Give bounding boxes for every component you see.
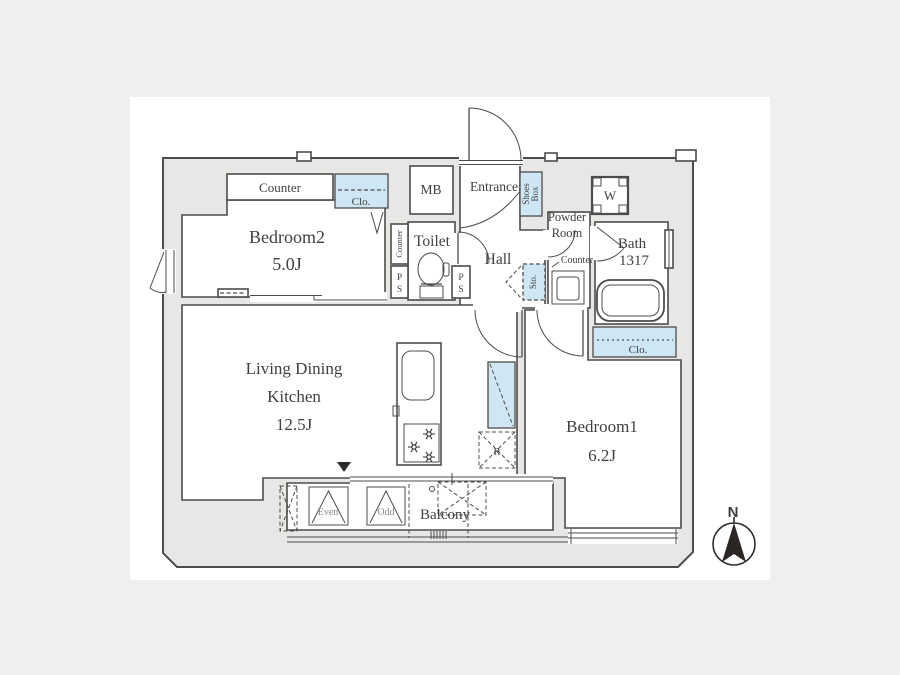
room-ldk <box>182 305 517 500</box>
label-ldk-1: Living Dining <box>246 359 343 378</box>
label-ps-left-s: S <box>397 285 402 295</box>
label-storage: Sto. <box>528 275 538 289</box>
label-hall: Hall <box>485 251 512 268</box>
label-ldk-size: 12.5J <box>276 415 313 434</box>
floor-plan-canvas: Counter Clo. Bedroom2 5.0J MB Entrance T… <box>0 0 900 675</box>
label-toilet: Toilet <box>414 233 451 250</box>
label-bath: Bath <box>618 236 647 252</box>
label-bedroom1: Bedroom1 <box>566 417 638 436</box>
compass-north-label: N <box>728 504 739 521</box>
label-bedroom1-size: 6.2J <box>588 446 616 465</box>
label-ps-left-p: P <box>397 273 402 283</box>
label-ac-odd: Odd <box>377 507 394 518</box>
label-refrigerator: R <box>493 446 501 458</box>
label-counter-bedroom2: Counter <box>259 180 302 195</box>
label-ps-right-p: P <box>458 273 463 283</box>
label-powder-1: Powder <box>548 210 587 224</box>
label-bedroom2-size: 5.0J <box>272 254 302 274</box>
label-meter-box: MB <box>420 182 441 197</box>
label-closet-bedroom2: Clo. <box>352 196 371 208</box>
kitchen-icon <box>393 343 441 465</box>
label-ps-right-s: S <box>458 285 463 295</box>
floor-plan-page: Counter Clo. Bedroom2 5.0J MB Entrance T… <box>0 0 900 675</box>
bedroom1-window <box>568 529 678 544</box>
bathtub-icon <box>597 280 664 321</box>
label-powder-2: Room <box>552 226 583 240</box>
label-counter-powder: Counter <box>561 255 594 266</box>
pantry-strip <box>488 362 515 428</box>
label-entrance: Entrance <box>470 179 518 194</box>
bath-window <box>665 230 673 268</box>
label-bedroom2: Bedroom2 <box>249 227 325 247</box>
room-bedroom2 <box>182 200 385 297</box>
label-ldk-2: Kitchen <box>267 387 321 406</box>
label-ac-even: Even <box>318 507 339 518</box>
label-washer: W <box>604 188 617 203</box>
label-shoes-2: Box <box>530 186 540 202</box>
label-counter-toilet: Counter <box>394 230 404 258</box>
label-balcony: Balcony <box>420 507 470 523</box>
label-closet-bedroom1: Clo. <box>629 344 648 356</box>
label-bath-size: 1317 <box>619 253 650 269</box>
